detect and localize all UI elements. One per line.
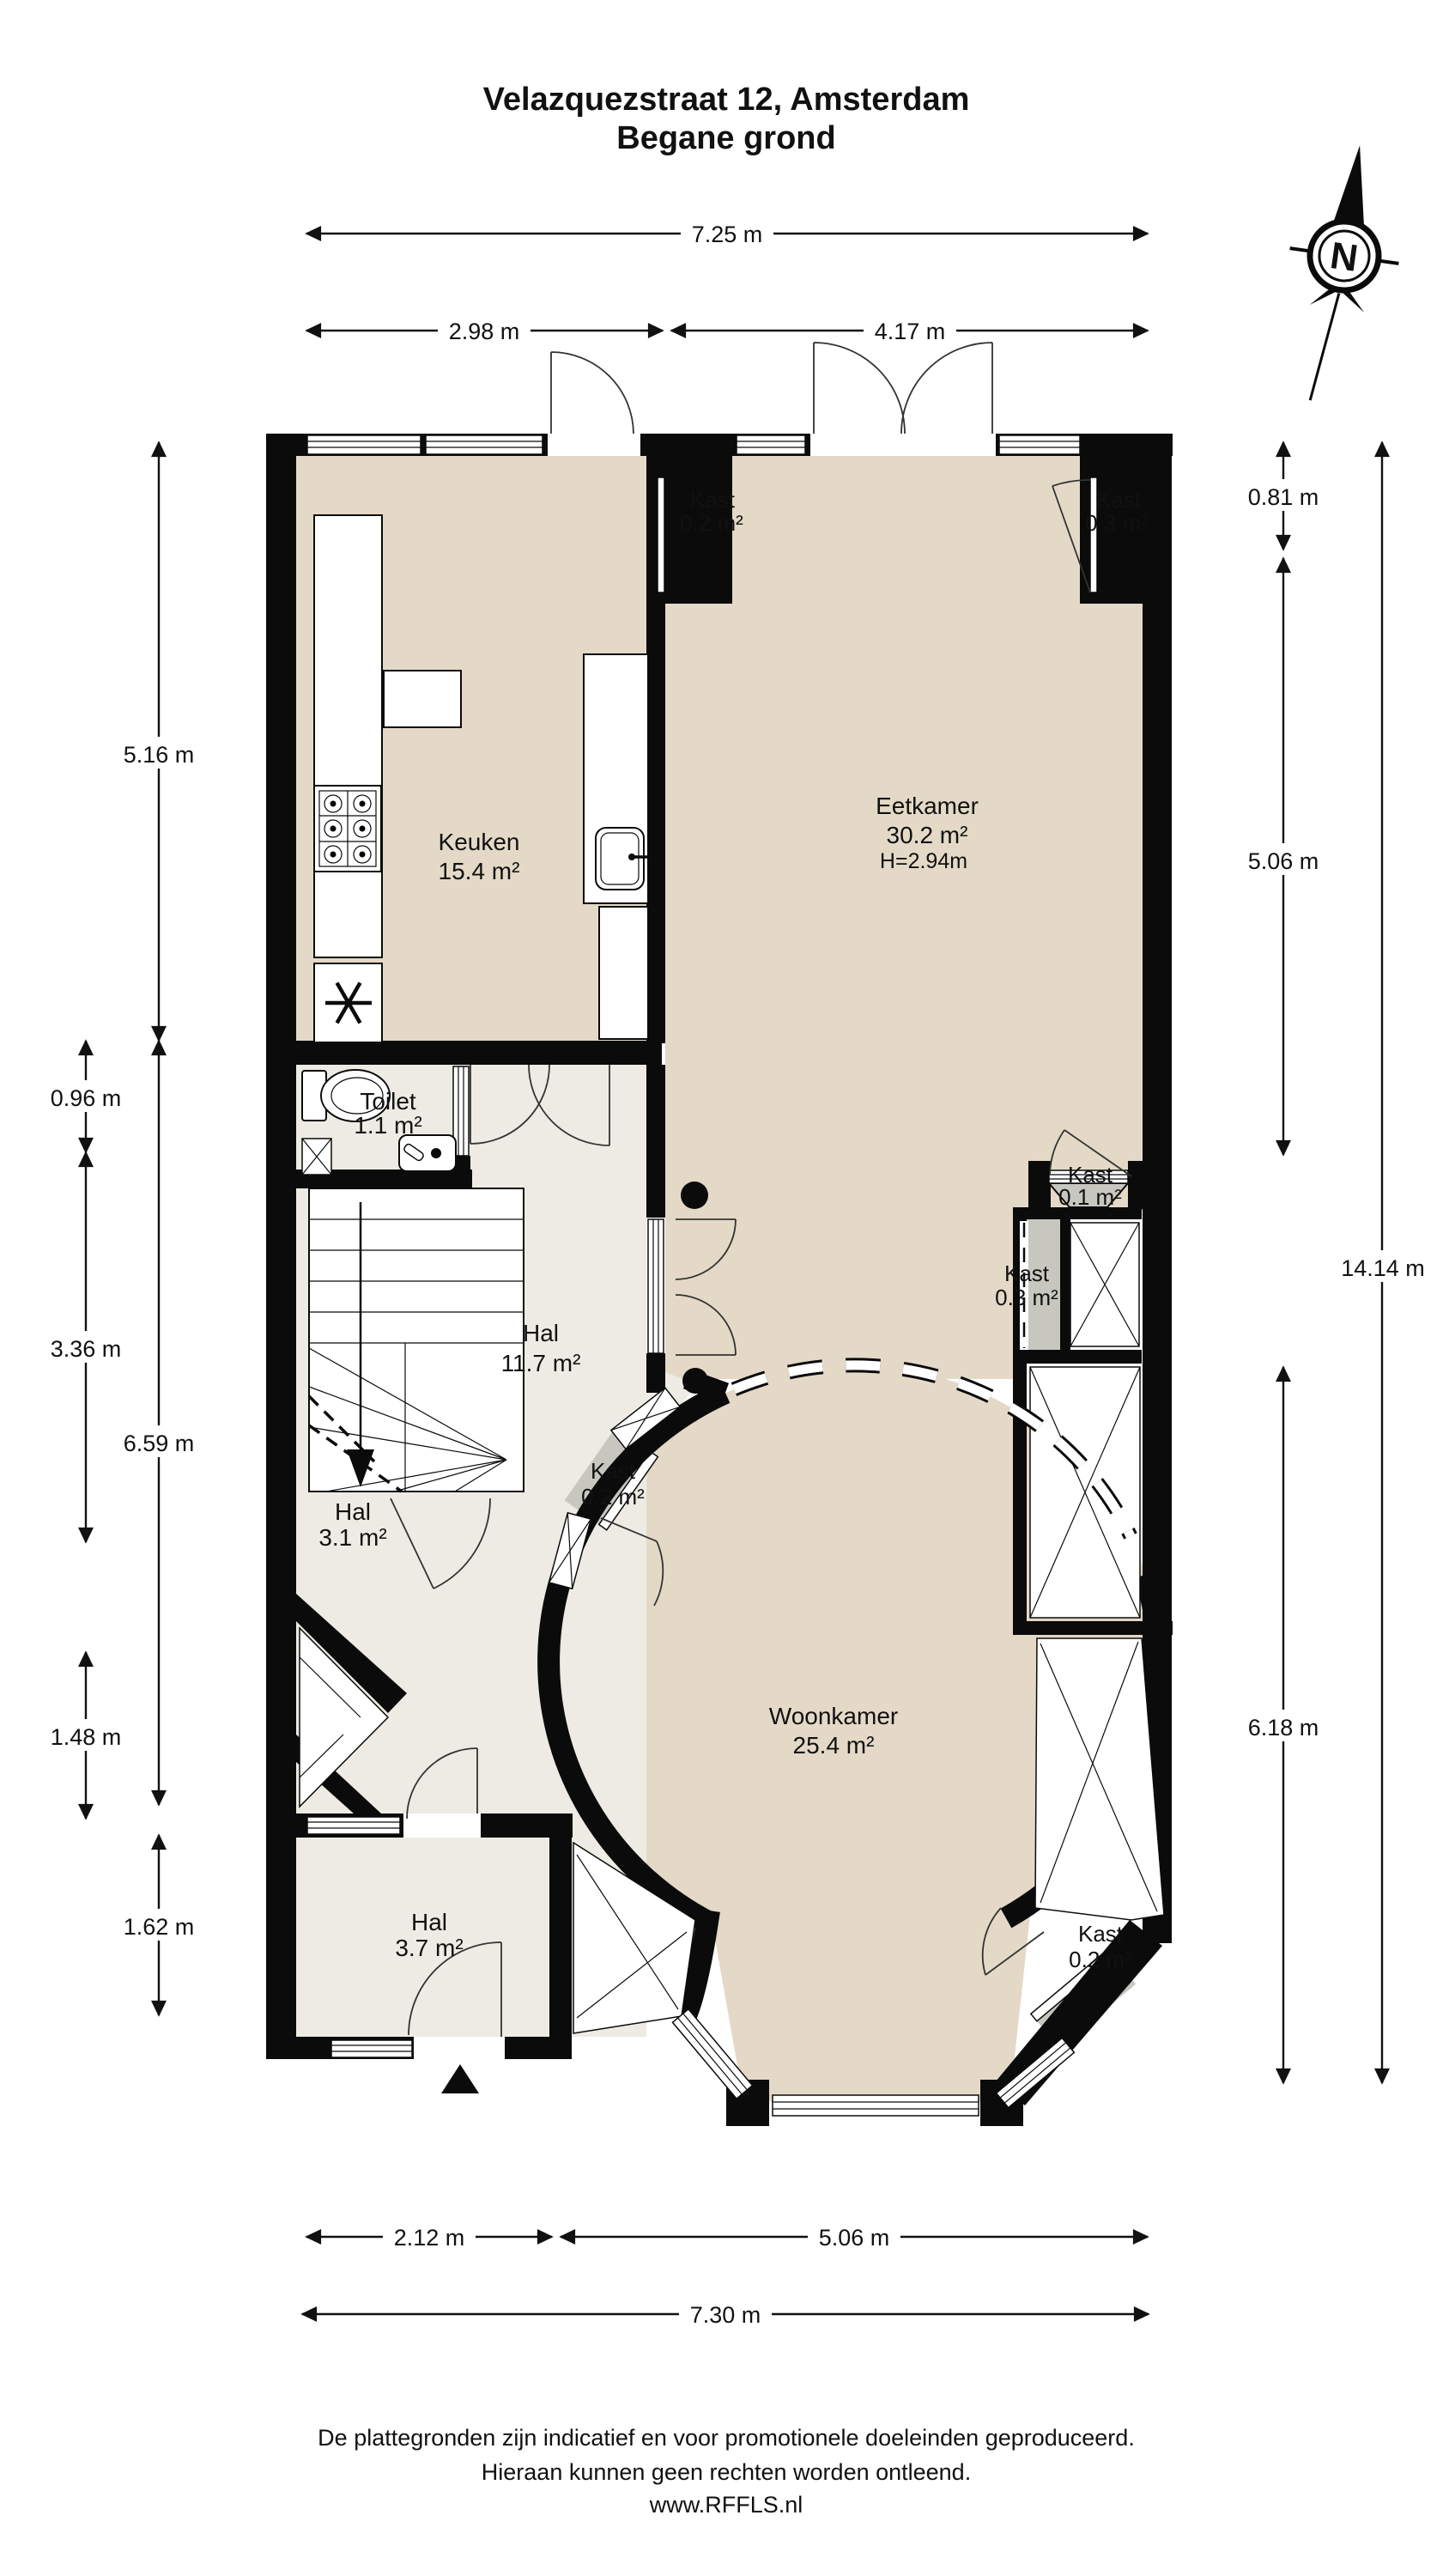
keuken-label: Keuken: [439, 829, 520, 855]
dim-top-left: 2.98 m: [449, 319, 520, 344]
toilet-label: Toilet: [360, 1088, 416, 1115]
keuken-area: 15.4 m²: [439, 858, 520, 884]
kast-keuken-area: 0.2 m²: [680, 510, 743, 536]
title-line2: Begane grond: [616, 120, 835, 156]
hal-midden-area: 3.1 m²: [318, 1524, 386, 1551]
hal-entree-label: Hal: [411, 1909, 447, 1935]
dim-left-2: 3.36 m: [51, 1336, 122, 1362]
footer-line3: www.RFFLS.nl: [649, 2492, 803, 2518]
dim-bottom-right: 5.06 m: [819, 2225, 890, 2251]
north-arrow-spike: [1332, 143, 1376, 231]
kast-erker-area: 0.2 m²: [1069, 1947, 1132, 1972]
page-title: Velazquezstraat 12, Amsterdam Begane gro…: [483, 82, 970, 156]
kast-eetkamer-label: Kast: [1096, 487, 1142, 513]
dim-top-total: 7.25 m: [692, 222, 763, 247]
kast-rechts-label: Kast: [1004, 1261, 1050, 1286]
kast-rond-area: 0.2 m²: [581, 1484, 645, 1510]
kast-erker-label: Kast: [1078, 1921, 1124, 1947]
kast-eetkamer-area: 0.3 m²: [1085, 510, 1149, 536]
hal-entree-area: 3.7 m²: [395, 1935, 463, 1961]
kast-klein-area: 0.1 m²: [1058, 1184, 1122, 1210]
dim-left-upper: 5.16 m: [124, 742, 195, 768]
toilet-area: 1.1 m²: [354, 1112, 421, 1139]
north-arrow: N: [1270, 137, 1415, 410]
dim-top-right: 4.17 m: [875, 319, 946, 344]
kast-rond-label: Kast: [591, 1458, 636, 1484]
eetkamer-floor-lower: [665, 1211, 1015, 1379]
dim-left-lower: 6.59 m: [124, 1431, 195, 1456]
floorplan-svg: Velazquezstraat 12, Amsterdam Begane gro…: [0, 0, 1449, 2576]
north-label: N: [1328, 234, 1361, 280]
title-line1: Velazquezstraat 12, Amsterdam: [483, 82, 970, 118]
hal-midden-label: Hal: [335, 1498, 371, 1525]
woonkamer-area: 25.4 m²: [793, 1732, 875, 1759]
dim-right-outer: 14.14 m: [1341, 1255, 1425, 1281]
hal-groot-label: Hal: [523, 1320, 559, 1346]
footer-disclaimer: De plattegronden zijn indicatief en voor…: [318, 2425, 1135, 2518]
dim-left-1: 0.96 m: [51, 1085, 122, 1111]
stairs: [309, 1188, 524, 1492]
kast-rechts-area: 0.3 m²: [995, 1285, 1058, 1310]
floorplan-page: Velazquezstraat 12, Amsterdam Begane gro…: [0, 0, 1449, 2576]
footer-line2: Hieraan kunnen geen rechten worden ontle…: [482, 2459, 971, 2485]
footer-line1: De plattegronden zijn indicatief en voor…: [318, 2425, 1135, 2451]
dim-left-3: 1.48 m: [51, 1724, 122, 1750]
stove-icon: [314, 786, 381, 872]
woonkamer-label: Woonkamer: [769, 1703, 898, 1729]
dim-right-2: 5.06 m: [1248, 848, 1319, 874]
eetkamer-label: Eetkamer: [876, 793, 979, 819]
dim-left-4: 1.62 m: [124, 1914, 195, 1940]
kast-keuken-label: Kast: [690, 487, 736, 513]
entrance-arrow: [441, 2064, 479, 2093]
column-bottom: [682, 1368, 708, 1394]
dim-right-3: 6.18 m: [1248, 1715, 1319, 1741]
dim-right-1: 0.81 m: [1248, 484, 1319, 510]
column-top: [681, 1182, 708, 1209]
eetkamer-area: 30.2 m²: [887, 822, 968, 848]
dim-bottom-total: 7.30 m: [690, 2302, 761, 2328]
dim-bottom-left: 2.12 m: [394, 2225, 465, 2251]
sink-icon: [596, 828, 648, 890]
hal-groot-area: 11.7 m²: [501, 1350, 581, 1376]
toilet-sink: [399, 1135, 456, 1171]
erker-floor: [711, 1915, 1030, 2102]
eetkamer-height: H=2.94m: [880, 849, 967, 873]
